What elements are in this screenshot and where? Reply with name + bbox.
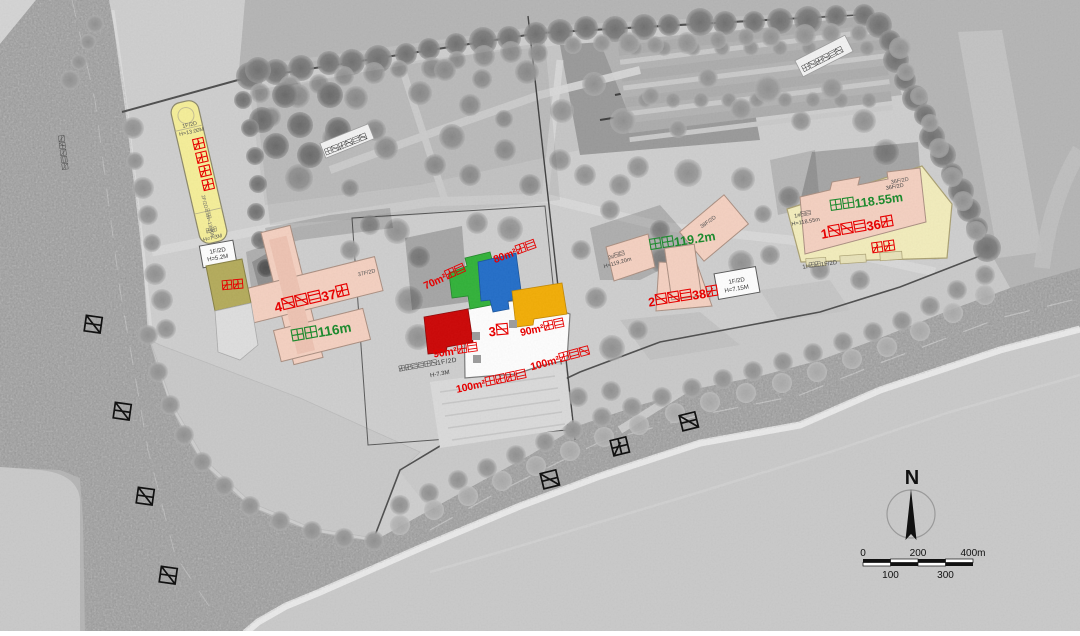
svg-text:100: 100 — [882, 570, 899, 581]
svg-text:300: 300 — [937, 570, 954, 581]
svg-text:200: 200 — [910, 548, 927, 559]
svg-text:0: 0 — [860, 548, 866, 559]
svg-text:N: N — [905, 467, 919, 489]
svg-text:38: 38 — [691, 287, 707, 303]
svg-text:3: 3 — [488, 324, 497, 340]
svg-text:400m: 400m — [960, 548, 985, 559]
svg-text:36: 36 — [865, 217, 882, 234]
